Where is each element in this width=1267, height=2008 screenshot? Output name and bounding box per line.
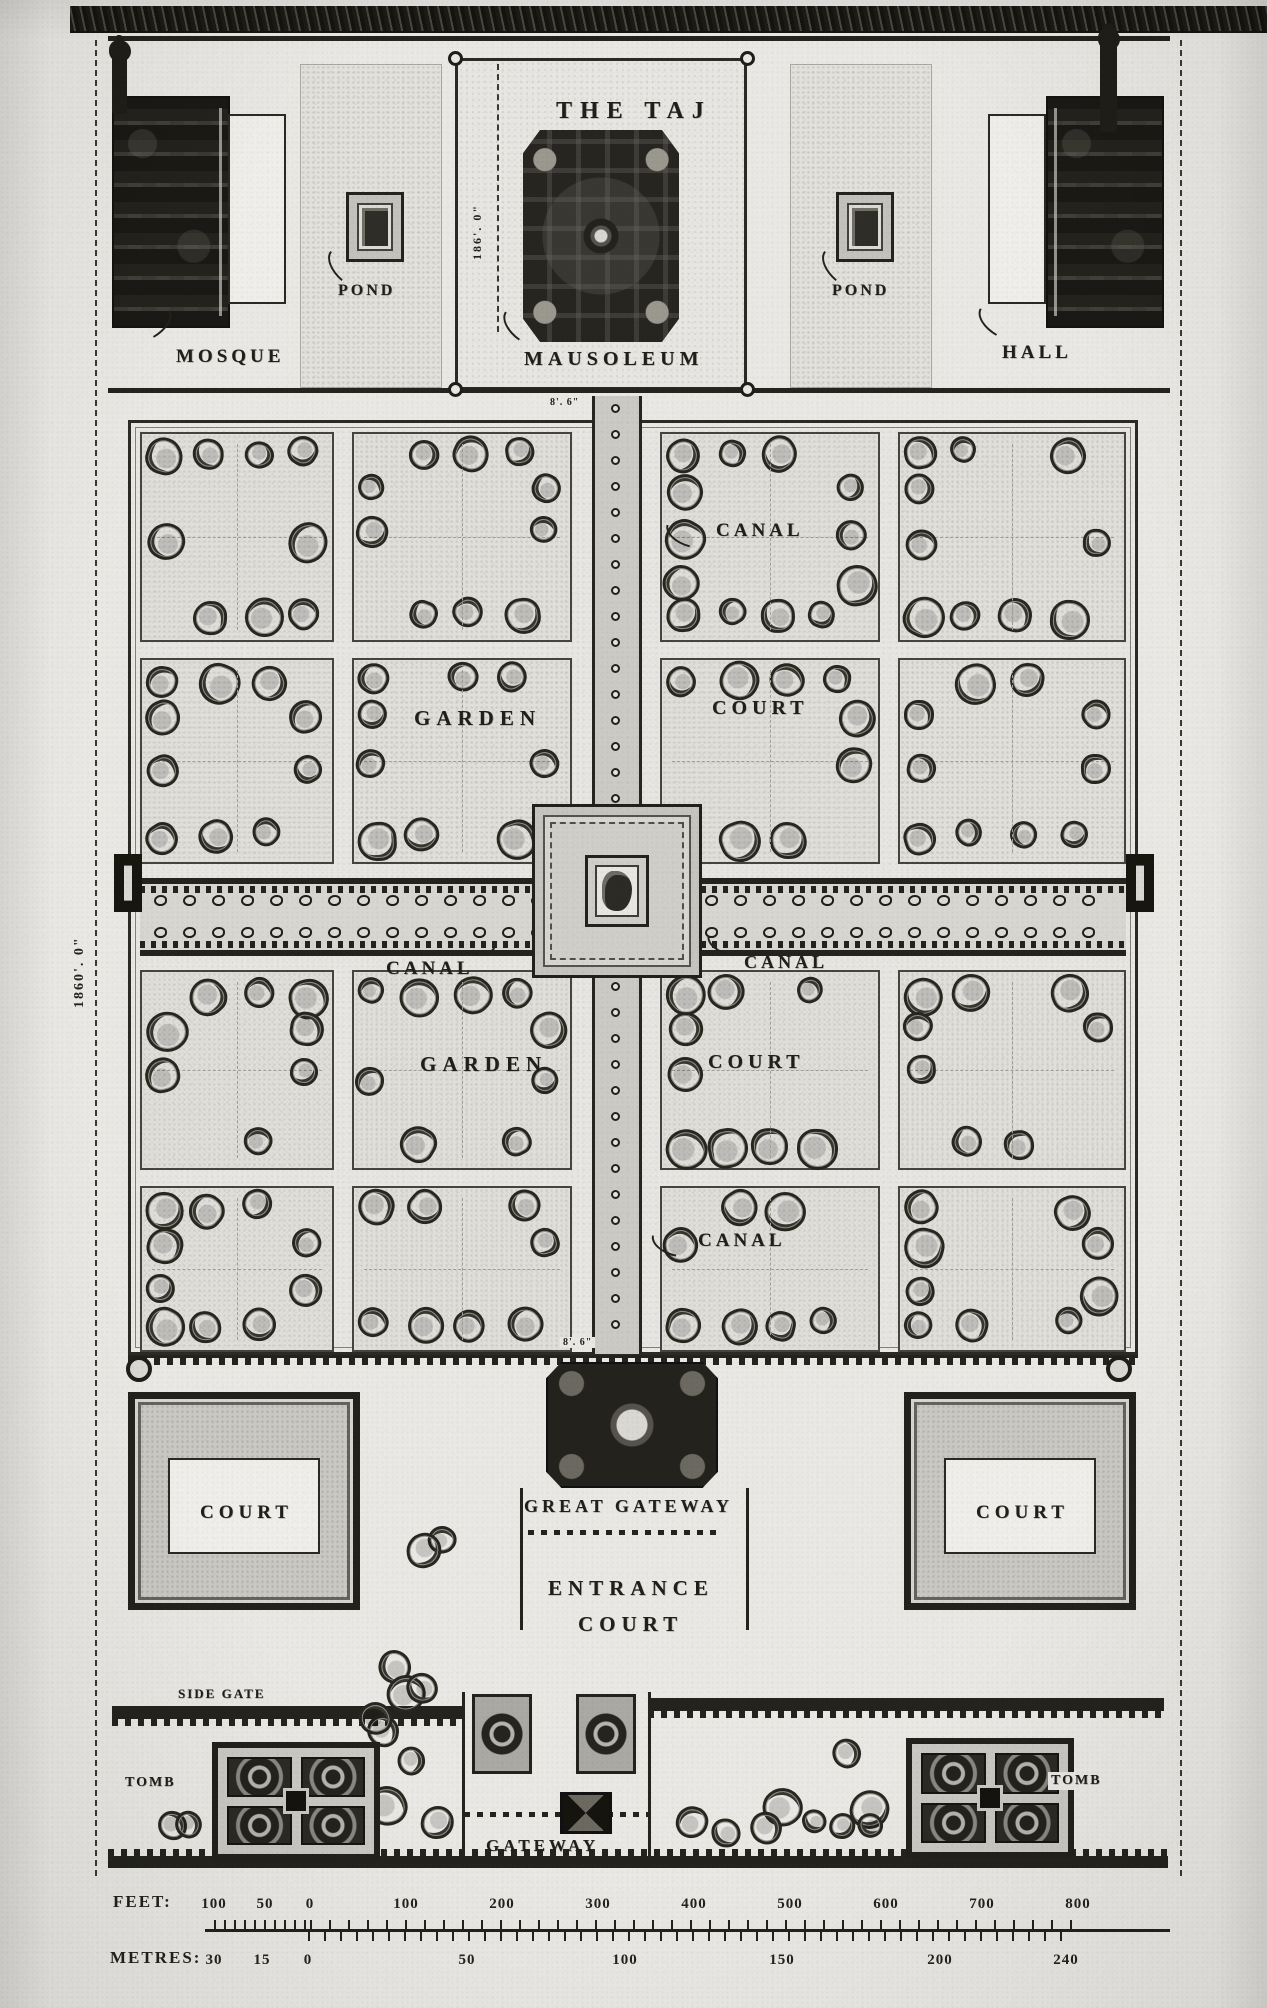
tree-icon bbox=[715, 437, 749, 471]
tree-icon bbox=[447, 430, 495, 478]
tree-icon bbox=[821, 663, 853, 695]
mausoleum-label: MAUSOLEUM bbox=[524, 348, 703, 371]
fountain-icon bbox=[611, 404, 620, 413]
tree-icon bbox=[900, 819, 940, 859]
tree-icon bbox=[995, 595, 1035, 635]
metres-scale-label: METRES: bbox=[110, 1948, 201, 1968]
fountain-icon bbox=[966, 895, 979, 906]
tree-icon bbox=[805, 598, 839, 632]
garden-plot bbox=[660, 1186, 880, 1352]
tree-icon bbox=[714, 815, 767, 868]
tree-icon bbox=[501, 1300, 549, 1348]
entrance-court-wall-east bbox=[746, 1488, 749, 1630]
tree-icon bbox=[1076, 694, 1117, 735]
forecourt-trees bbox=[390, 1516, 470, 1586]
fountain-icon bbox=[763, 895, 776, 906]
feet-tick: 400 bbox=[681, 1896, 707, 1913]
tomb-garden-quadrant bbox=[301, 1757, 366, 1797]
tomb-left-label: TOMB bbox=[122, 1774, 179, 1792]
entrance-court-label-line2: COURT bbox=[578, 1612, 683, 1637]
fountain-icon bbox=[386, 927, 399, 938]
feet-tick: 200 bbox=[489, 1896, 515, 1913]
tree-icon bbox=[442, 656, 484, 698]
feet-tick: 100 bbox=[393, 1896, 419, 1913]
tree-icon bbox=[403, 434, 445, 476]
fountain-icon bbox=[792, 927, 805, 938]
tree-icon bbox=[794, 974, 826, 1006]
fountain-icon bbox=[611, 742, 620, 751]
garden-plot bbox=[352, 432, 572, 642]
fountain-icon bbox=[611, 1320, 620, 1329]
tree-icon bbox=[492, 656, 533, 697]
fountain-icon bbox=[502, 895, 515, 906]
tree-icon bbox=[401, 1183, 449, 1231]
fountain-icon bbox=[1024, 927, 1037, 938]
fountain-icon bbox=[611, 1138, 620, 1147]
court-label-upper: COURT bbox=[712, 697, 809, 720]
tree-icon bbox=[1003, 1128, 1037, 1162]
fountain-icon bbox=[357, 895, 370, 906]
tree-icon bbox=[282, 516, 335, 569]
mosque-label: MOSQUE bbox=[176, 346, 284, 368]
tree-icon bbox=[194, 815, 240, 861]
tree-icon bbox=[1009, 661, 1047, 699]
central-tank bbox=[585, 855, 649, 927]
fountain-icon bbox=[241, 927, 254, 938]
fountain-icon bbox=[602, 871, 632, 911]
tree-icon bbox=[240, 435, 279, 474]
minaret-icon bbox=[448, 51, 463, 66]
tree-icon bbox=[286, 697, 326, 737]
fountain-icon bbox=[611, 1008, 620, 1017]
fountain-icon bbox=[611, 586, 620, 595]
tree-icon bbox=[827, 1734, 866, 1773]
fountain-icon bbox=[183, 895, 196, 906]
pond-right bbox=[836, 192, 894, 262]
tree-icon bbox=[140, 817, 185, 862]
fountain-icon bbox=[386, 895, 399, 906]
tree-icon bbox=[715, 1183, 765, 1233]
dimension-line-left bbox=[95, 40, 97, 1876]
tree-icon bbox=[834, 562, 880, 608]
feet-tick: 50 bbox=[257, 1896, 274, 1913]
tree-icon bbox=[701, 967, 751, 1017]
canal-width-dimension-bottom: 8'. 6" bbox=[560, 1337, 595, 1348]
feet-tick: 100 bbox=[201, 1896, 227, 1913]
entrance-court-wall-west bbox=[520, 1488, 523, 1630]
garden-label-lower: GARDEN bbox=[420, 1052, 547, 1077]
tree-icon bbox=[762, 1307, 799, 1344]
dimension-strip bbox=[528, 1530, 718, 1535]
tree-icon bbox=[662, 1005, 709, 1052]
tree-icon bbox=[1050, 1302, 1087, 1339]
tree-icon bbox=[496, 972, 538, 1014]
fountain-icon bbox=[611, 534, 620, 543]
fountain-icon bbox=[611, 482, 620, 491]
tree-icon bbox=[238, 1185, 277, 1224]
fountain-icon bbox=[611, 560, 620, 569]
tomb-center bbox=[977, 1785, 1003, 1811]
tree-icon bbox=[192, 438, 224, 470]
bastion-icon bbox=[1106, 1356, 1132, 1382]
tree-icon bbox=[656, 558, 707, 609]
metres-tick: 0 bbox=[304, 1952, 313, 1969]
tree-icon bbox=[713, 593, 750, 630]
tree-icon bbox=[796, 1128, 838, 1170]
fountain-icon bbox=[415, 895, 428, 906]
fountain-icon bbox=[763, 927, 776, 938]
plan-title: THE TAJ bbox=[556, 98, 712, 125]
tree-icon bbox=[660, 467, 710, 517]
wall-ornament bbox=[648, 1711, 1164, 1718]
tomb-garden-quadrant bbox=[995, 1803, 1060, 1844]
fountain-icon bbox=[473, 927, 486, 938]
canal-label-mid-right: CANAL bbox=[744, 952, 828, 973]
fountain-icon bbox=[611, 456, 620, 465]
riverfront-wall bbox=[108, 36, 1170, 41]
fountain-icon bbox=[611, 1268, 620, 1277]
canal-label-top: CANAL bbox=[716, 520, 804, 542]
court-label-lower: COURT bbox=[708, 1051, 805, 1074]
tomb-garden-quadrant bbox=[921, 1803, 986, 1844]
fountain-icon bbox=[908, 895, 921, 906]
minaret-icon bbox=[740, 382, 755, 397]
garden-plot bbox=[352, 1186, 572, 1352]
tree-icon bbox=[247, 813, 286, 852]
tree-icon bbox=[188, 1310, 222, 1344]
mausoleum-building bbox=[523, 130, 679, 342]
outer-court-trees-east bbox=[660, 1724, 890, 1848]
fountain-icon bbox=[937, 895, 950, 906]
fountain-icon bbox=[154, 895, 167, 906]
tree-icon bbox=[658, 1121, 714, 1177]
tree-icon bbox=[1043, 432, 1092, 481]
gateway-pier bbox=[560, 1792, 612, 1834]
fountain-icon bbox=[270, 895, 283, 906]
tree-icon bbox=[716, 1303, 764, 1351]
tree-icon bbox=[139, 1302, 191, 1354]
fountain-icon bbox=[611, 1242, 620, 1251]
fountain-icon bbox=[473, 895, 486, 906]
central-platform bbox=[532, 804, 702, 978]
fountain-icon bbox=[299, 895, 312, 906]
fountain-icon bbox=[792, 895, 805, 906]
garden-plot bbox=[898, 1186, 1126, 1352]
fountain-icon bbox=[611, 982, 620, 991]
fountain-icon bbox=[1053, 895, 1066, 906]
minaret-icon bbox=[740, 51, 755, 66]
side-gate-east bbox=[1126, 854, 1154, 912]
gate-passage bbox=[1136, 866, 1144, 901]
scale-ruler-feet-ticks bbox=[310, 1920, 1080, 1929]
tree-icon bbox=[141, 433, 187, 479]
tree-icon bbox=[352, 1302, 394, 1344]
tree-icon bbox=[1083, 1011, 1115, 1043]
garden-plot bbox=[140, 1186, 334, 1352]
side-gate-west bbox=[114, 854, 142, 912]
tree-icon bbox=[526, 1224, 563, 1261]
terrace-south-wall bbox=[108, 388, 1170, 393]
fountain-icon bbox=[821, 895, 834, 906]
tree-icon bbox=[355, 1066, 385, 1096]
central-canal-upper bbox=[592, 396, 642, 810]
corner-finial-left bbox=[112, 52, 127, 114]
tree-icon bbox=[673, 1803, 713, 1843]
tree-icon bbox=[950, 814, 988, 852]
tomb-garden-quadrant bbox=[921, 1753, 986, 1794]
fountain-icon bbox=[995, 895, 1008, 906]
tree-icon bbox=[238, 972, 280, 1014]
garden-plot bbox=[140, 658, 334, 864]
tomb-left bbox=[212, 1742, 380, 1860]
tree-icon bbox=[354, 973, 389, 1008]
taj-plan-sheet: 1860'. 0" MOSQUE POND THE TAJ MAUSOLEUM … bbox=[0, 0, 1267, 2008]
fountain-icon bbox=[1082, 927, 1095, 938]
fountain-icon bbox=[611, 690, 620, 699]
fountain-icon bbox=[328, 895, 341, 906]
fountain-icon bbox=[611, 1086, 620, 1095]
fountain-icon bbox=[611, 430, 620, 439]
fountain-icon bbox=[611, 1294, 620, 1303]
fountain-icon bbox=[611, 1216, 620, 1225]
tree-icon bbox=[287, 1223, 326, 1262]
gateway-room bbox=[472, 1694, 532, 1774]
tree-icon bbox=[246, 659, 294, 707]
tree-icon bbox=[353, 513, 392, 552]
feet-tick: 0 bbox=[306, 1896, 315, 1913]
feet-tick: 700 bbox=[969, 1896, 995, 1913]
river-band bbox=[70, 6, 1267, 33]
gateway-label: GATEWAY bbox=[486, 1836, 599, 1856]
central-canal-lower bbox=[592, 974, 642, 1354]
bastion-icon bbox=[126, 1356, 152, 1382]
tree-icon bbox=[142, 750, 185, 793]
garden-plot bbox=[140, 970, 334, 1170]
fountain-icon bbox=[995, 927, 1008, 938]
feet-tick: 500 bbox=[777, 1896, 803, 1913]
tree-icon bbox=[828, 1813, 856, 1841]
dimension-strip bbox=[464, 1812, 650, 1817]
tree-icon bbox=[286, 1270, 327, 1311]
tree-icon bbox=[947, 598, 984, 635]
tree-icon bbox=[394, 1119, 444, 1169]
minaret-icon bbox=[448, 382, 463, 397]
leader-line bbox=[972, 308, 1004, 336]
tree-icon bbox=[665, 597, 702, 634]
tree-icon bbox=[405, 596, 442, 633]
tree-icon bbox=[446, 1304, 491, 1349]
tomb-garden-quadrant bbox=[301, 1806, 366, 1846]
gate-passage bbox=[124, 866, 132, 901]
fountain-icon bbox=[611, 1190, 620, 1199]
tree-icon bbox=[282, 592, 326, 636]
gateway-room bbox=[576, 1694, 636, 1774]
tree-icon bbox=[139, 695, 185, 741]
tree-icon bbox=[904, 700, 935, 731]
fountain-icon bbox=[611, 638, 620, 647]
fountain-icon bbox=[444, 895, 457, 906]
fountain-icon bbox=[821, 927, 834, 938]
tree-icon bbox=[447, 591, 489, 633]
tree-icon bbox=[951, 659, 1001, 709]
canal-label-mid-left: CANAL bbox=[386, 958, 474, 980]
garden-plot bbox=[898, 432, 1126, 642]
mausoleum-width-dimension: 186'. 0" bbox=[470, 150, 485, 260]
fountain-icon bbox=[850, 895, 863, 906]
fountain-icon bbox=[611, 716, 620, 725]
tree-icon bbox=[142, 516, 191, 565]
fountain-icon bbox=[357, 927, 370, 938]
fountain-icon bbox=[611, 1034, 620, 1043]
fountain-icon bbox=[611, 794, 620, 803]
tree-icon bbox=[353, 695, 391, 733]
tree-icon bbox=[899, 1306, 937, 1344]
metres-tick: 100 bbox=[612, 1952, 638, 1969]
fountain-icon bbox=[705, 895, 718, 906]
fountain-icon bbox=[212, 927, 225, 938]
fountain-icon bbox=[611, 1060, 620, 1069]
metres-tick: 200 bbox=[927, 1952, 953, 1969]
tree-icon bbox=[946, 432, 980, 466]
fountain-icon bbox=[879, 895, 892, 906]
dimension-line-right bbox=[1180, 40, 1182, 1876]
mosque-arcade bbox=[219, 108, 222, 316]
court-label-left: COURT bbox=[200, 1502, 293, 1524]
fountain-icon bbox=[212, 895, 225, 906]
tree-icon bbox=[357, 821, 398, 862]
feet-tick: 300 bbox=[585, 1896, 611, 1913]
outer-court-trees-corner bbox=[116, 1796, 212, 1852]
fountain-icon bbox=[611, 1112, 620, 1121]
tree-icon bbox=[144, 1273, 177, 1306]
pond-right-label: POND bbox=[832, 282, 889, 300]
tomb-right-label: TOMB bbox=[1048, 1772, 1105, 1790]
tree-icon bbox=[239, 1122, 278, 1161]
tree-icon bbox=[1083, 529, 1111, 557]
metres-tick: 15 bbox=[254, 1952, 271, 1969]
tree-icon bbox=[146, 1191, 184, 1229]
tree-icon bbox=[833, 693, 883, 743]
fountain-icon bbox=[502, 927, 515, 938]
tree-icon bbox=[193, 658, 246, 711]
fountain-icon bbox=[879, 927, 892, 938]
tree-icon bbox=[141, 1054, 183, 1096]
tree-icon bbox=[899, 523, 943, 567]
tree-icon bbox=[660, 432, 707, 479]
tree-icon bbox=[391, 1741, 431, 1781]
metres-tick: 50 bbox=[459, 1952, 476, 1969]
tree-icon bbox=[287, 1056, 320, 1089]
tree-icon bbox=[283, 430, 324, 471]
tree-icon bbox=[237, 589, 292, 644]
tree-icon bbox=[1048, 598, 1091, 641]
tree-icon bbox=[524, 511, 562, 549]
gateway-court-wall-west bbox=[462, 1692, 465, 1858]
entrance-court-label-line1: ENTRANCE bbox=[548, 1576, 714, 1601]
garden-label-upper: GARDEN bbox=[414, 706, 541, 731]
mosque-building bbox=[112, 96, 230, 328]
pond-left-label: POND bbox=[338, 282, 395, 300]
tree-icon bbox=[352, 657, 395, 700]
tree-icon bbox=[182, 1187, 231, 1236]
tree-icon bbox=[420, 1806, 453, 1839]
feet-scale-label: FEET: bbox=[113, 1892, 172, 1912]
pond-water bbox=[852, 208, 878, 246]
tree-icon bbox=[946, 1121, 987, 1162]
tree-icon bbox=[806, 1302, 841, 1337]
great-gateway-building bbox=[546, 1362, 718, 1488]
metres-tick: 30 bbox=[206, 1952, 223, 1969]
tree-icon bbox=[235, 1301, 282, 1348]
tree-icon bbox=[139, 1004, 196, 1061]
tree-icon bbox=[662, 1051, 710, 1099]
fountain-icon bbox=[850, 927, 863, 938]
fountain-icon bbox=[611, 612, 620, 621]
pond-left bbox=[346, 192, 404, 262]
tree-icon bbox=[951, 1305, 993, 1347]
tree-icon bbox=[1081, 753, 1112, 784]
tree-icon bbox=[497, 1122, 536, 1161]
canal-width-dimension-top: 8'. 6" bbox=[550, 397, 579, 408]
tree-icon bbox=[903, 1274, 938, 1309]
canal-label-bottom: CANAL bbox=[698, 1230, 786, 1252]
fountain-icon bbox=[937, 927, 950, 938]
fountain-icon bbox=[1024, 895, 1037, 906]
tree-icon bbox=[143, 663, 181, 701]
tree-icon bbox=[1046, 969, 1094, 1017]
tree-icon bbox=[503, 596, 542, 635]
metres-tick: 240 bbox=[1053, 1952, 1079, 1969]
tree-icon bbox=[906, 1054, 937, 1085]
fountain-icon bbox=[1053, 927, 1066, 938]
fountain-icon bbox=[611, 1164, 620, 1173]
tree-icon bbox=[899, 1224, 948, 1273]
tree-icon bbox=[832, 469, 869, 506]
tree-icon bbox=[192, 600, 227, 635]
fountain-icon bbox=[966, 927, 979, 938]
fountain-icon bbox=[328, 927, 341, 938]
fountain-icon bbox=[270, 927, 283, 938]
tree-icon bbox=[524, 1006, 574, 1056]
tomb-center bbox=[283, 1788, 309, 1814]
tomb-right bbox=[906, 1738, 1074, 1858]
fountain-icon bbox=[444, 927, 457, 938]
tree-icon bbox=[750, 1127, 789, 1166]
tree-icon bbox=[355, 471, 388, 504]
overall-length-dimension: 1860'. 0" bbox=[72, 878, 88, 1008]
mosque-courtyard bbox=[228, 114, 286, 304]
tree-icon bbox=[288, 750, 327, 789]
tree-icon bbox=[525, 744, 565, 784]
tree-icon bbox=[901, 434, 940, 473]
tree-icon bbox=[662, 1305, 704, 1347]
garden-plot bbox=[898, 970, 1126, 1170]
tomb-garden-quadrant bbox=[227, 1757, 292, 1797]
garden-plot bbox=[140, 432, 334, 642]
tree-icon bbox=[829, 514, 871, 556]
tomb-garden-quadrant bbox=[227, 1806, 292, 1846]
tree-icon bbox=[527, 469, 566, 508]
fountain-icon bbox=[908, 927, 921, 938]
tree-icon bbox=[898, 1184, 944, 1230]
feet-tick: 800 bbox=[1065, 1896, 1091, 1913]
fountain-icon bbox=[415, 927, 428, 938]
tree-icon bbox=[799, 1805, 830, 1836]
tree-icon bbox=[505, 1185, 545, 1225]
metres-tick: 150 bbox=[769, 1952, 795, 1969]
scale-ruler-minor-ticks bbox=[214, 1920, 312, 1929]
tree-icon bbox=[1076, 1221, 1121, 1266]
